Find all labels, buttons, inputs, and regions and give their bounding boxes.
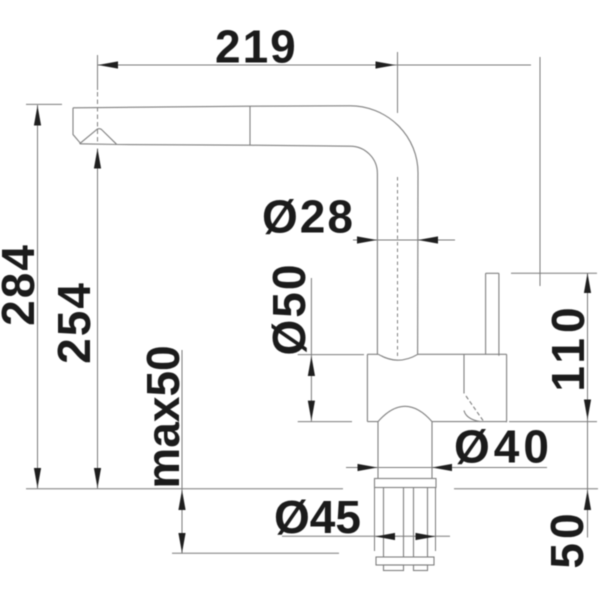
svg-text:110: 110 xyxy=(542,302,594,391)
svg-text:284: 284 xyxy=(0,243,44,326)
svg-text:50: 50 xyxy=(541,509,593,568)
svg-text:219: 219 xyxy=(215,21,298,73)
svg-text:max50: max50 xyxy=(137,345,189,488)
svg-text:Ø45: Ø45 xyxy=(274,491,361,543)
svg-text:Ø40: Ø40 xyxy=(454,421,553,473)
svg-text:Ø50: Ø50 xyxy=(263,263,315,356)
svg-text:Ø28: Ø28 xyxy=(262,191,355,243)
svg-text:254: 254 xyxy=(48,281,100,364)
